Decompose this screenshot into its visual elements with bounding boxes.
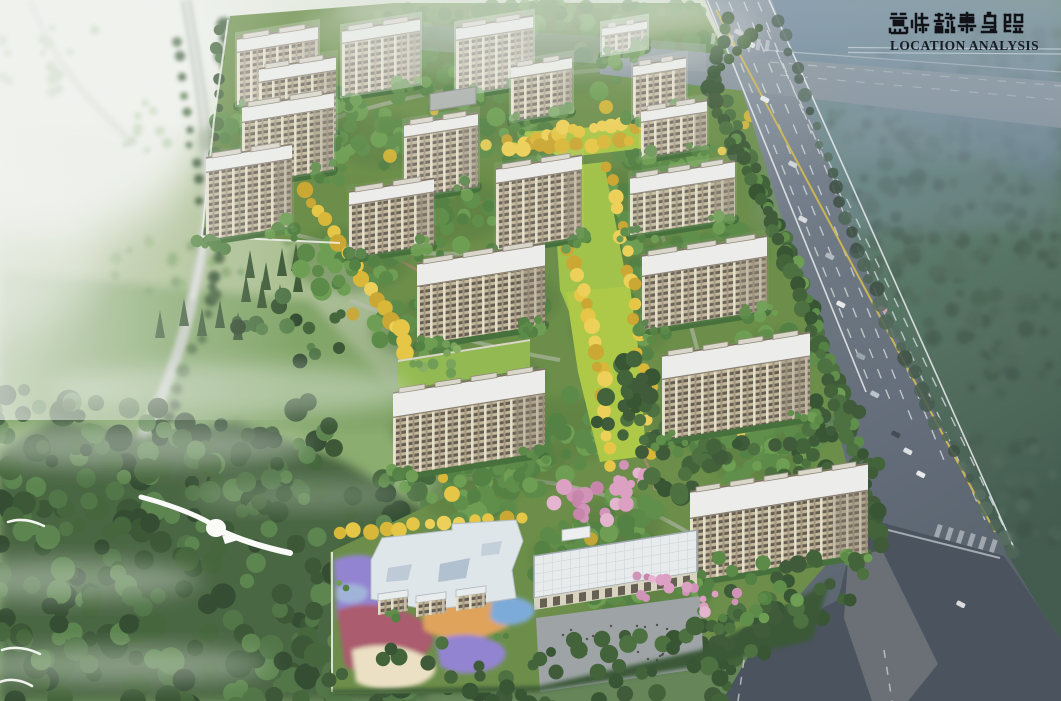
- svg-text:LOCATION ANALYSIS: LOCATION ANALYSIS: [890, 38, 1039, 53]
